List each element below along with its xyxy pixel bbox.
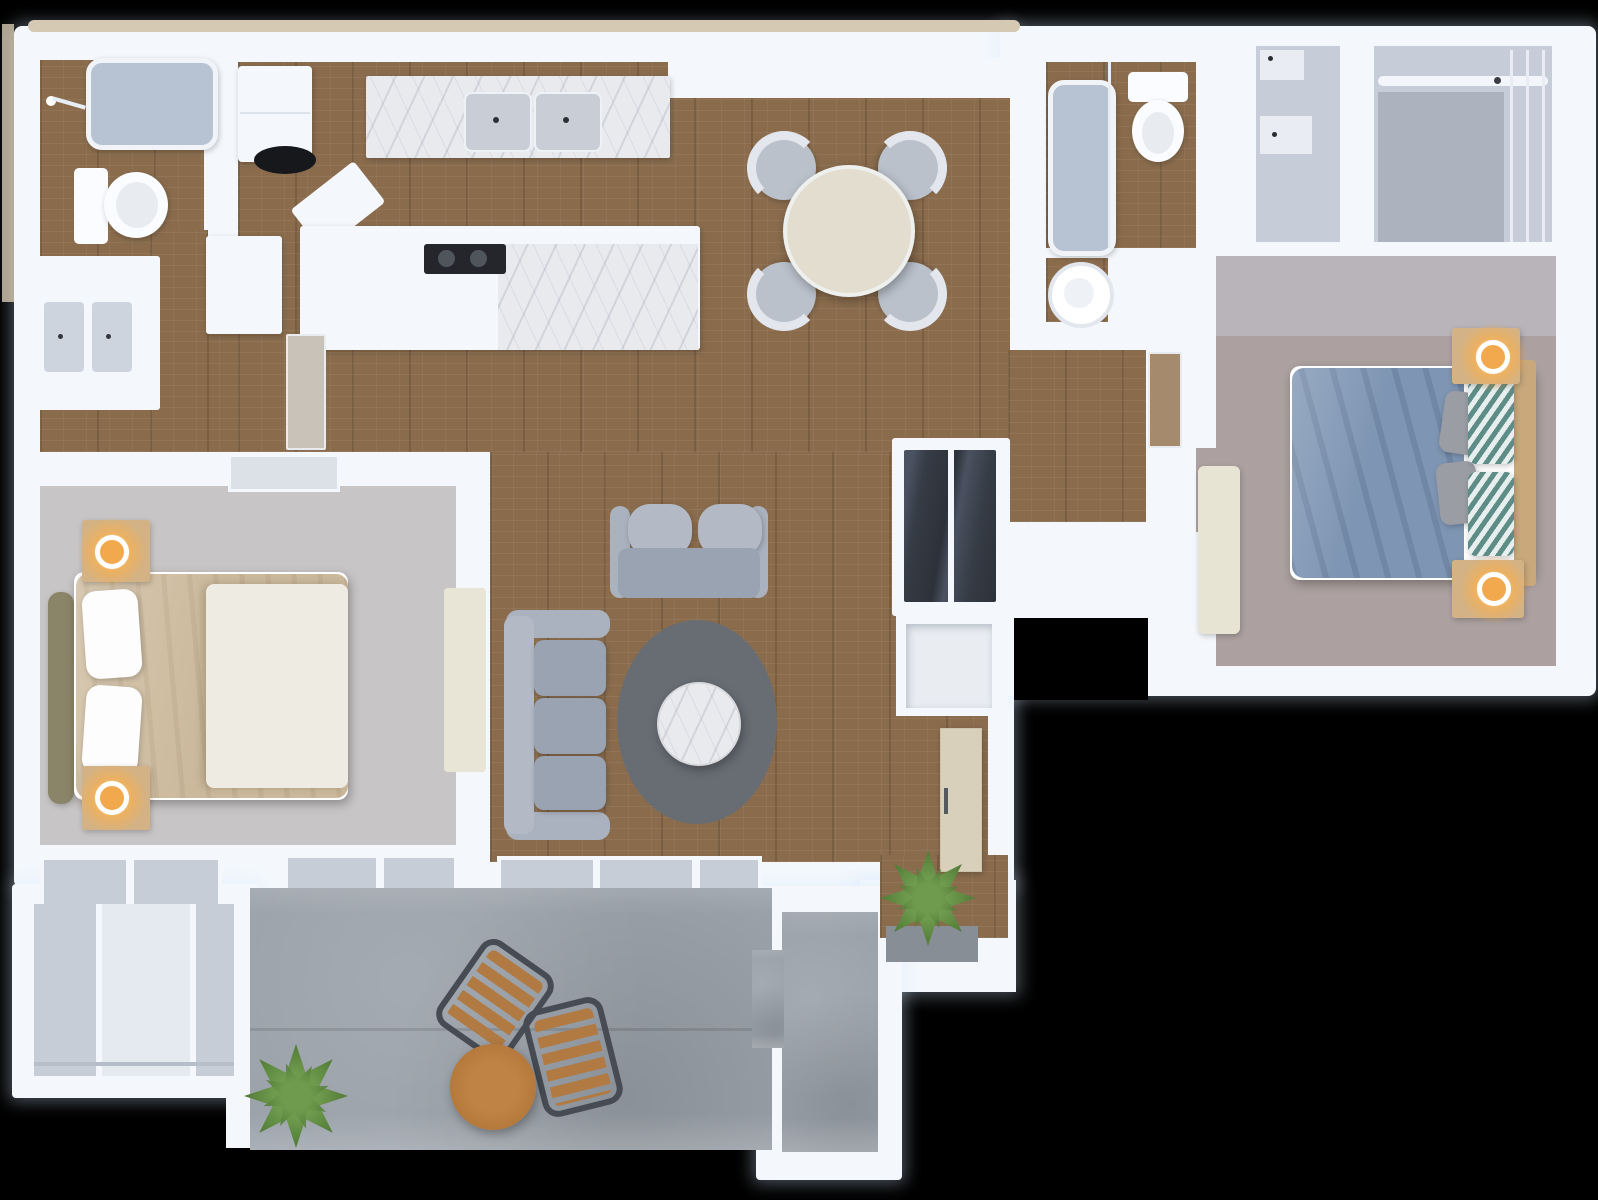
- floor-plan-render: [0, 0, 1598, 1200]
- sink-drain-right: [563, 117, 569, 123]
- roof-edge-top: [28, 20, 1020, 32]
- closet-block-frame-1: [96, 904, 102, 1076]
- closet-b-shelf-line-3: [1542, 50, 1545, 242]
- utility-niche: [906, 624, 992, 708]
- closet-b-rod: [1378, 76, 1548, 86]
- closet-block-glass-right: [196, 904, 234, 1076]
- water-heater-2-lid: [1064, 278, 1094, 308]
- hallway-floor: [1008, 350, 1146, 522]
- bathtub-2: [1048, 80, 1116, 256]
- coffee-table: [657, 682, 741, 766]
- dining-top-wall: [668, 58, 1014, 98]
- bathtub-1: [86, 58, 218, 150]
- guest-headboard: [1514, 360, 1536, 586]
- toilet-2-seat: [1142, 112, 1174, 154]
- closet-b-back-shade: [1378, 92, 1504, 242]
- vanity-1-sink-right: [92, 302, 132, 372]
- table-lamp-icon: [1476, 340, 1510, 374]
- peninsula-marble-top: [498, 244, 698, 350]
- table-lamp-icon: [95, 535, 129, 569]
- shower-glass-2: [1108, 62, 1111, 248]
- sofa-cushion-2: [534, 698, 606, 754]
- corridor-closet-cabinet: [206, 236, 282, 334]
- water-heater-top: [254, 146, 316, 174]
- storage-door-opening: [752, 950, 784, 1048]
- closet-a-shelf-2: [1260, 116, 1312, 154]
- guest-pillow-chevron-1: [1468, 380, 1514, 464]
- master-dresser: [444, 588, 486, 772]
- sliding-door-glass: [40, 856, 130, 908]
- storage-room-floor: [782, 912, 878, 1152]
- guest-pillow-chevron-2: [1468, 472, 1514, 556]
- cabinet-handle: [944, 788, 948, 814]
- dining-table: [783, 165, 915, 297]
- closet-b-shelf-line-2: [1526, 50, 1529, 242]
- cooktop-burner-1: [438, 250, 455, 267]
- cooktop-burner-2: [470, 250, 487, 267]
- entry-closet-mullion: [948, 450, 954, 602]
- sliding-door-glass: [130, 856, 222, 908]
- closet-block-glass-left: [34, 904, 96, 1076]
- loveseat-seat: [618, 548, 760, 598]
- vanity-1-sink-left: [44, 302, 84, 372]
- toilet-1-seat: [116, 182, 158, 228]
- closet-b-rod-end: [1494, 77, 1501, 84]
- patio-table: [450, 1044, 536, 1130]
- exterior-notch: [1014, 618, 1148, 700]
- master-pillow-1: [81, 588, 143, 680]
- master-headboard: [48, 592, 74, 804]
- closet-block-frame-2: [190, 904, 196, 1076]
- closet-a-shelf-1: [1260, 50, 1304, 80]
- faucet-dot-2: [106, 334, 111, 339]
- cooktop: [424, 244, 506, 274]
- guest-door-panel: [1148, 352, 1182, 448]
- sofa-cushion-1: [534, 640, 606, 696]
- closet-a-light-1: [1268, 56, 1273, 61]
- faucet-dot-1: [58, 334, 63, 339]
- closet-b-shelf-line-1: [1510, 50, 1513, 242]
- table-lamp-icon: [1477, 572, 1511, 606]
- roof-edge-left: [2, 24, 14, 302]
- toilet-1-tank: [74, 168, 108, 244]
- kitchen-door-panel: [286, 334, 326, 450]
- master-door-panel: [228, 454, 340, 492]
- sofa-back: [504, 616, 534, 834]
- sofa-cushion-3: [534, 756, 606, 810]
- sink-drain-left: [493, 117, 499, 123]
- guest-bench: [1198, 466, 1240, 634]
- closet-a-light-2: [1272, 132, 1277, 137]
- table-lamp-icon: [95, 781, 129, 815]
- master-blanket-white: [206, 584, 348, 788]
- refrigerator-door-seam: [240, 112, 310, 114]
- toilet-2-tank: [1128, 72, 1188, 102]
- closet-block-track: [34, 1062, 234, 1066]
